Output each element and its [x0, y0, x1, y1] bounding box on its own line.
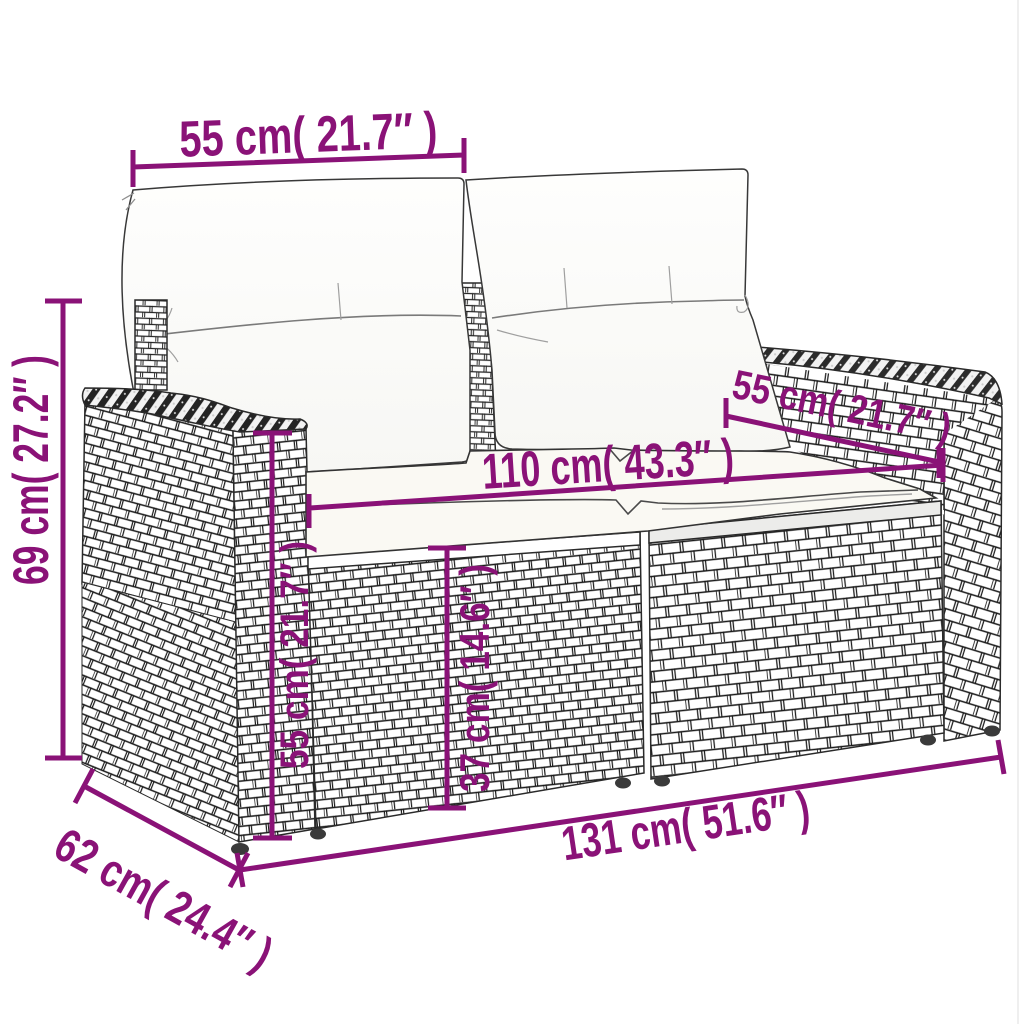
svg-text:55 cm( 21.7″ ): 55 cm( 21.7″ ) — [178, 101, 438, 167]
svg-text:37 cm( 14.6″ ): 37 cm( 14.6″ ) — [451, 564, 498, 792]
svg-text:69 cm( 27.2″ ): 69 cm( 27.2″ ) — [3, 355, 59, 585]
svg-text:55 cm( 21.7″ ): 55 cm( 21.7″ ) — [273, 541, 317, 769]
